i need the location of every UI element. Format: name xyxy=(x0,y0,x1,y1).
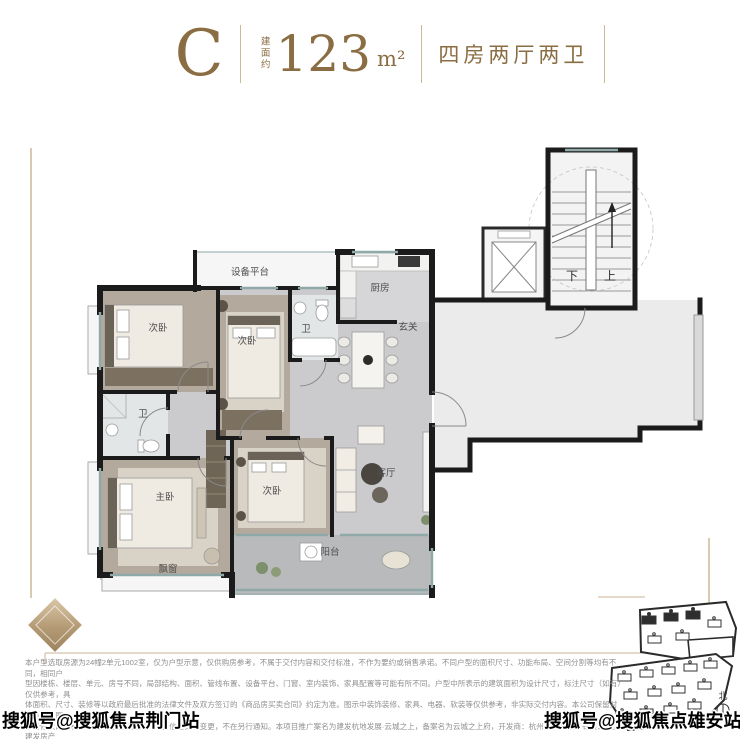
label-bay-window: 飘窗 xyxy=(158,563,177,575)
watermark-bottom-left: 搜狐号@搜狐焦点荆门站 xyxy=(2,707,200,733)
label-bedroom-2: 次卧 xyxy=(237,335,257,347)
label-stairs-up: 上 xyxy=(604,269,616,283)
label-bedroom-1: 次卧 xyxy=(148,322,168,334)
label-master-bedroom: 主卧 xyxy=(155,491,175,503)
disclaimer-line: 本户型选取房源为24幢2单元1002室，仅为户型示意，仅供购房参考，不属于交付内… xyxy=(25,658,622,679)
disclaimer-line: 型因楼栋、楼层、单元、房号不同，局部结构、面积、管线布置、设备平台、门窗、室内装… xyxy=(25,679,622,700)
label-bath-2: 卫 xyxy=(138,409,148,420)
floor-plan-drawing: 设备平台 厨房 玄关 次卧 次卧 卫 卫 主卧 次卧 客厅 阳台 飘窗 下 上 xyxy=(0,0,740,739)
watermark-bottom-right: 搜狐号@搜狐焦点雄安站 xyxy=(544,707,740,733)
label-bedroom-3: 次卧 xyxy=(262,485,282,497)
floorplan-page: C 建面约 123 m² 四房两厅两卫 xyxy=(0,0,740,739)
label-kitchen: 厨房 xyxy=(370,282,389,294)
label-bath-1: 卫 xyxy=(301,324,311,335)
north-label: 北 xyxy=(718,691,727,701)
label-stairs-down: 下 xyxy=(566,269,578,283)
label-balcony: 阳台 xyxy=(320,546,339,558)
label-living-room: 客厅 xyxy=(376,467,396,479)
label-equipment-platform: 设备平台 xyxy=(231,266,269,278)
label-entry: 玄关 xyxy=(398,321,418,333)
